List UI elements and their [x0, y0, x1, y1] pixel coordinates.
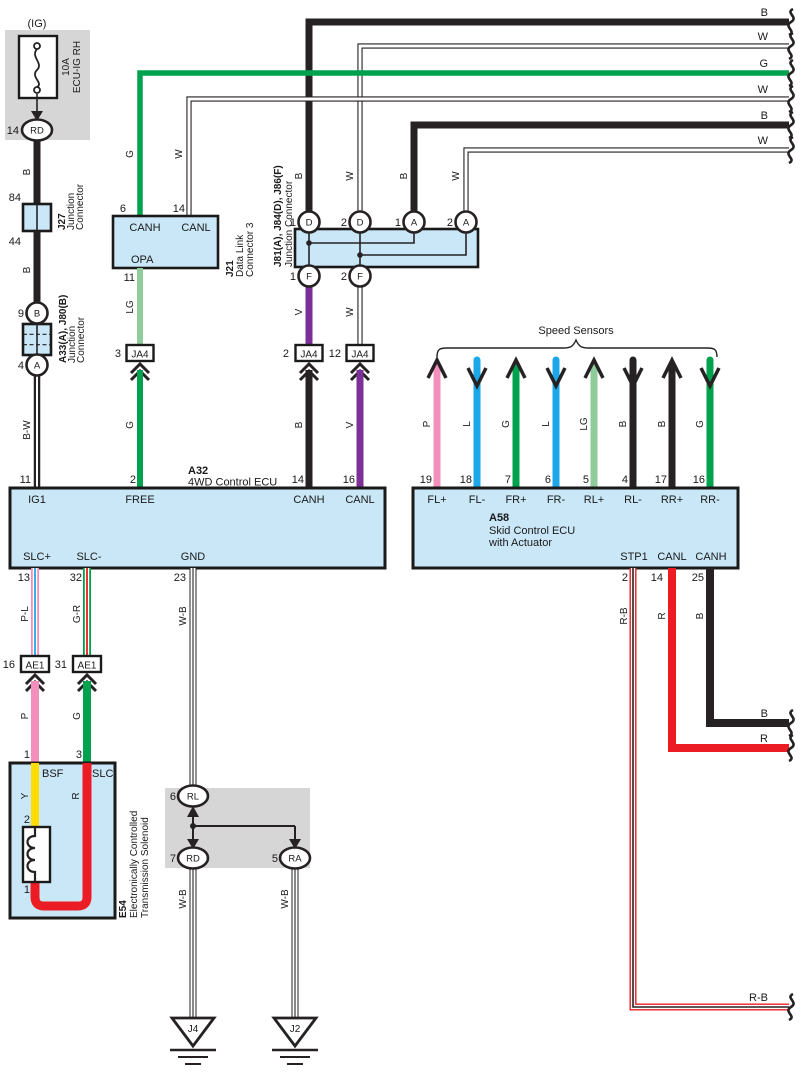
pin-number: 18 [460, 474, 472, 486]
exit-label: W [758, 135, 769, 147]
ja4-label: JA4 [300, 350, 318, 361]
ground-label-j2: J2 [290, 1024, 301, 1035]
wire-color-label: R-B [619, 607, 630, 625]
pin-number: 1 [24, 749, 30, 761]
wire-w-top-6 [466, 150, 789, 212]
pin-number: 1 [290, 271, 296, 283]
wire-color-label: V [345, 421, 356, 428]
wire-color-label: B-W [22, 420, 33, 440]
ae1-label: AE1 [78, 661, 97, 672]
wire-color-label: W-B [280, 889, 291, 909]
wire-color-label: B [294, 421, 305, 428]
j21-canh-label: CANH [129, 222, 160, 234]
terminal-code: RD [186, 854, 200, 865]
a58-name-line: Skid Control ECU [489, 525, 575, 537]
terminal-code: D [357, 218, 364, 229]
terminal-code: RL [187, 792, 199, 803]
wire-color-label: B [618, 420, 629, 427]
e54-type-line: Electronically Controlled [129, 811, 140, 918]
fuse-title: (IG) [28, 18, 47, 30]
pin-number: 2 [622, 572, 628, 584]
terminal-label: FL+ [427, 494, 446, 506]
pin-number: 1 [24, 884, 30, 896]
wire-color-label: W [345, 171, 356, 181]
junction-dot [306, 240, 312, 246]
a32-id: A32 [188, 465, 208, 477]
j21-canl-label: CANL [181, 222, 210, 234]
ja4-label: JA4 [351, 350, 369, 361]
junction-dot [357, 252, 363, 258]
wire-color-label: L [541, 421, 552, 427]
pin-number: 7 [170, 853, 176, 865]
wire-color-label: G [125, 421, 136, 429]
terminal-label: CANL [657, 551, 686, 563]
fuse-terminal-top [34, 43, 40, 49]
pin-number: 14 [651, 572, 663, 584]
pin-number: 11 [124, 272, 135, 284]
e54-id: E54 [118, 900, 129, 918]
wire-color-label: G [125, 150, 136, 158]
terminal-label: RL- [624, 494, 642, 506]
wire-color-label: G [695, 420, 706, 428]
wiring-diagram-page: B W G W B W (IG) 10A ECU-IG RH 14 RD B 8… [0, 0, 802, 1075]
e54-slc-label: SLC [92, 768, 113, 780]
terminal-code: F [357, 272, 363, 283]
terminal-label: SLC- [76, 551, 101, 563]
j81-junction-connector [295, 229, 478, 267]
pin-number: 1 [395, 217, 401, 229]
terminal-label: CANH [695, 551, 726, 563]
terminal-label: FR+ [505, 494, 526, 506]
pin-number: 16 [3, 659, 15, 671]
terminal-label: RR- [700, 494, 720, 506]
pin-number: 2 [283, 348, 289, 360]
j21-opa-label: OPA [131, 254, 154, 266]
wire-color-label: L [462, 421, 473, 427]
ae1-label: AE1 [26, 661, 45, 672]
wire-color-label: B [399, 172, 410, 179]
pin-number: 4 [622, 474, 628, 486]
wire-color-label: P [422, 420, 433, 427]
a58-name-line: with Actuator [488, 537, 552, 549]
pin-number: 5 [272, 853, 278, 865]
e54-type-line: Transmission Solenoid [140, 817, 151, 918]
terminal-label: GND [181, 551, 206, 563]
wiring-diagram: B W G W B W (IG) 10A ECU-IG RH 14 RD B 8… [0, 0, 802, 1075]
wire-color-label: R [71, 792, 82, 799]
wire-b-top-1 [309, 22, 789, 212]
pin-number: 1 [290, 217, 296, 229]
wire-color-label: W [174, 149, 185, 159]
terminal-code: D [306, 218, 313, 229]
terminal-code: A [34, 361, 41, 372]
wire-color-label: P [20, 712, 31, 719]
terminal-label: SLC+ [23, 551, 51, 563]
pin-number: 3 [76, 749, 82, 761]
terminal-label: FR- [547, 494, 566, 506]
wire-color-label: LG [125, 300, 136, 314]
wire-color-label: V [294, 308, 305, 315]
wire-color-label: W [345, 307, 356, 317]
pin-number: 4 [18, 360, 24, 372]
fuse-terminal-bottom [34, 87, 40, 93]
pin-number: 5 [583, 474, 589, 486]
a33-type-line: Connector [76, 316, 87, 363]
terminal-code: F [306, 272, 312, 283]
pin-number: 2 [341, 271, 347, 283]
speed-sensors-title: Speed Sensors [538, 325, 614, 337]
pin-number: 2 [130, 474, 136, 486]
pin-number: 2 [447, 217, 453, 229]
terminal-code: A [411, 218, 418, 229]
wire-color-label: B [22, 168, 33, 175]
exit-label: W [758, 84, 769, 96]
terminal-code: RA [288, 854, 302, 865]
a58-id: A58 [489, 512, 509, 524]
j27-type-line: Connector [75, 183, 86, 230]
pin-number: 14 [7, 125, 19, 137]
j81-id: J81(A), J84(D), J86(F) [273, 165, 284, 267]
j21-type-line: Connector 3 [245, 222, 256, 277]
pin-number: 17 [655, 474, 667, 486]
exit-label: W [758, 31, 769, 43]
pin-number: 14 [292, 474, 304, 486]
pin-number: 11 [20, 474, 31, 486]
pin-number: 6 [545, 474, 551, 486]
terminal-label: RR+ [661, 494, 683, 506]
fuse-amp: 10A [61, 58, 72, 76]
pin-number: 16 [343, 474, 355, 486]
pin-number: 16 [693, 474, 705, 486]
pin-number: 44 [9, 236, 21, 248]
exit-label: R [760, 733, 768, 745]
wire-color-label: R [657, 612, 668, 619]
pin-number: 84 [9, 192, 21, 204]
exit-label: B [761, 110, 768, 122]
terminal-label: CANH [293, 494, 324, 506]
pin-number: 12 [329, 348, 341, 360]
wire-color-label: W-B [178, 606, 189, 626]
pin-number: 14 [173, 203, 185, 215]
ja4-label: JA4 [131, 350, 149, 361]
exit-label: R-B [749, 992, 768, 1004]
wire-color-label: LG [579, 417, 590, 431]
wire-color-label: B [294, 172, 305, 179]
ground-label-j4: J4 [188, 1024, 199, 1035]
terminal-label: IG1 [28, 494, 46, 506]
pin-number: 13 [18, 572, 30, 584]
exit-label: B [761, 7, 768, 19]
terminal-label: FL- [469, 494, 486, 506]
pin-number: 6 [170, 791, 176, 803]
fuse-name: ECU-IG RH [72, 41, 83, 93]
wire-color-label: Y [20, 792, 31, 799]
pin-number: 2 [341, 217, 347, 229]
pin-number: 2 [24, 814, 30, 826]
pin-number: 3 [115, 348, 121, 360]
terminal-label: CANL [345, 494, 374, 506]
wire-color-label: W [451, 171, 462, 181]
pin-number: 9 [18, 308, 24, 320]
wire-color-label: G [501, 420, 512, 428]
wire-color-label: G-R [72, 605, 83, 623]
pin-number: 7 [505, 474, 511, 486]
terminal-code: B [34, 309, 40, 320]
a58-skid-control-ecu [413, 488, 738, 568]
terminal-label: STP1 [620, 551, 648, 563]
pin-number: 19 [420, 474, 432, 486]
e54-bsf-label: BSF [42, 768, 64, 780]
terminal-code: A [463, 218, 470, 229]
wire-b-canh-right [710, 568, 789, 723]
terminal-label: RL+ [584, 494, 605, 506]
pin-number: 25 [692, 572, 704, 584]
wire-color-label: W-B [178, 889, 189, 909]
wire-b-top-5 [414, 125, 789, 212]
pin-number: 32 [70, 572, 82, 584]
terminal-code: RD [30, 126, 44, 137]
terminal-label: FREE [125, 494, 154, 506]
wire-color-label: B [695, 612, 706, 619]
a32-name: 4WD Control ECU [188, 477, 277, 489]
exit-label: B [761, 708, 768, 720]
pin-number: 6 [120, 203, 126, 215]
wire-color-label: B [22, 266, 33, 273]
pin-number: 31 [55, 659, 67, 671]
speed-sensors-brace [437, 340, 717, 357]
wire-color-label: B [657, 420, 668, 427]
exit-label: G [759, 58, 768, 70]
pin-number: 23 [174, 572, 186, 584]
wire-color-label: G [72, 712, 83, 720]
wire-color-label: P-L [20, 606, 31, 622]
